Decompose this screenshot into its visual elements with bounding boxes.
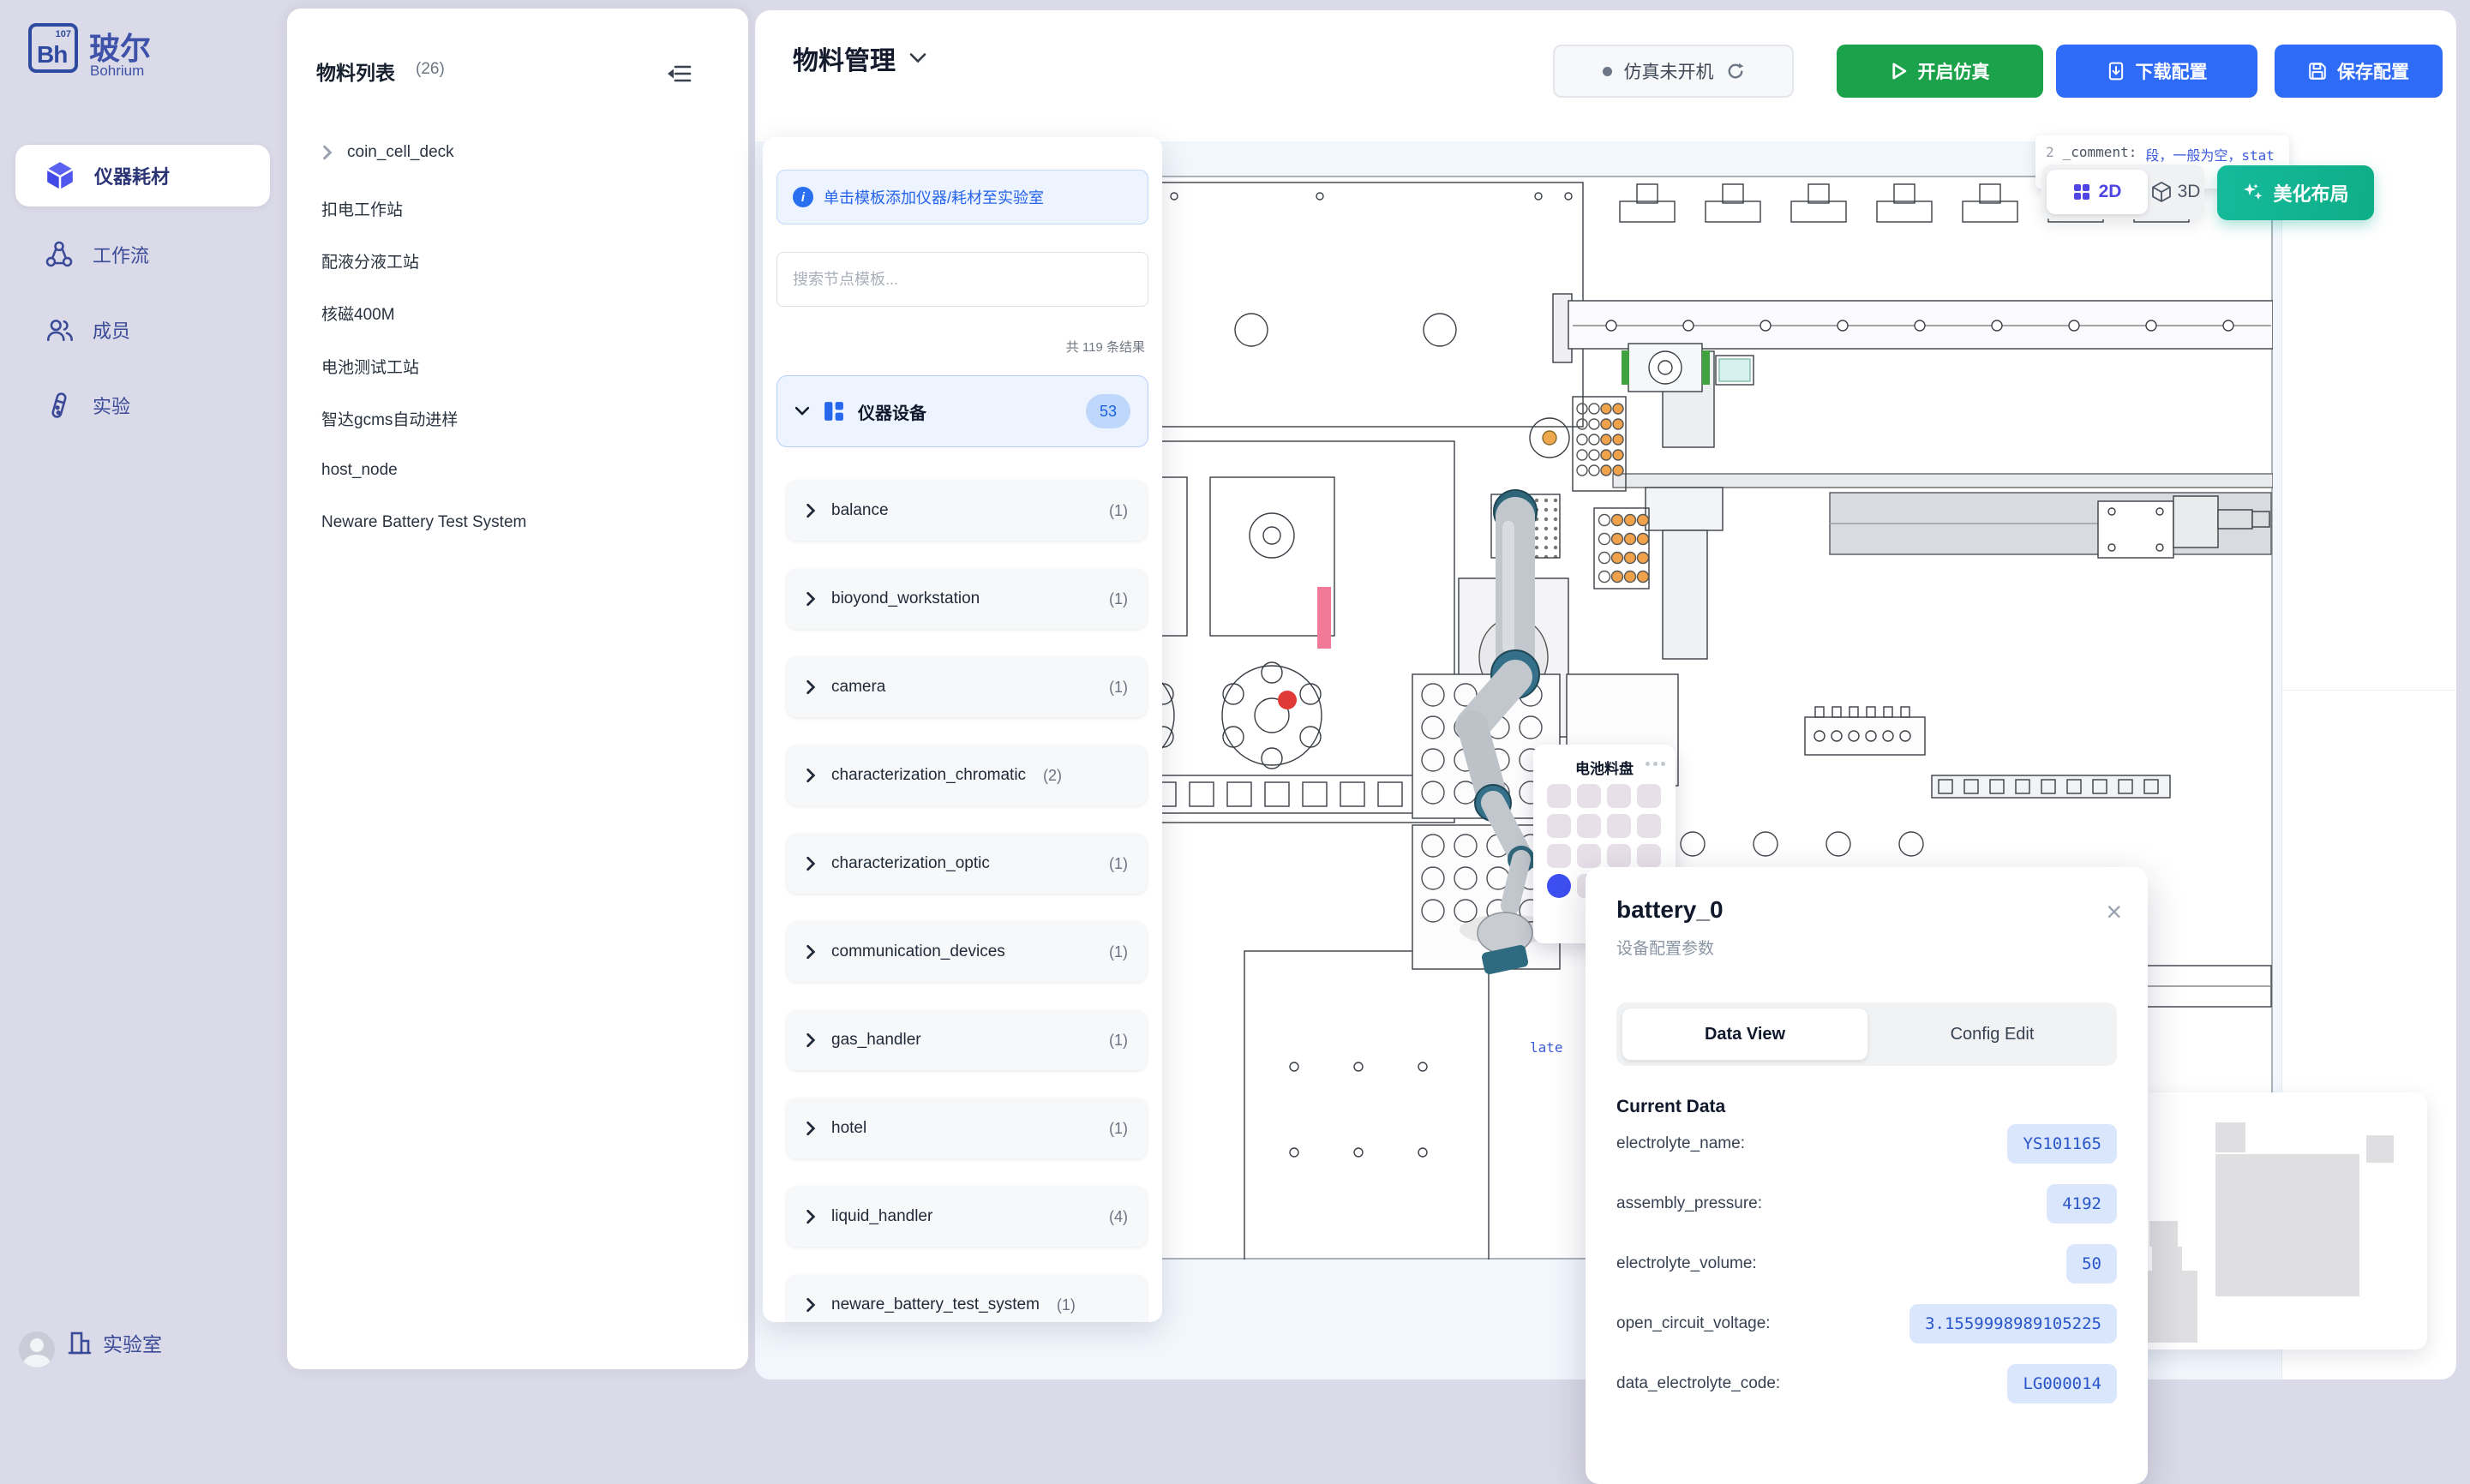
grid-2d-icon <box>2073 183 2090 200</box>
beautify-layout-button[interactable]: 美化布局 <box>2217 165 2374 220</box>
workflow-icon <box>45 240 74 269</box>
save-config-button[interactable]: 保存配置 <box>2275 45 2443 98</box>
save-icon <box>2308 62 2327 81</box>
close-icon[interactable]: × <box>2106 898 2122 925</box>
cube-3d-icon <box>2152 182 2171 202</box>
data-row: open_circuit_voltage: 3.1559998989105225 <box>1616 1304 2117 1343</box>
logo-symbol: Bh <box>37 41 67 69</box>
data-row: electrolyte_name: YS101165 <box>1616 1124 2117 1164</box>
experiment-icon <box>45 391 74 420</box>
template-item-count: (2) <box>1043 767 1062 785</box>
building-icon <box>67 1330 93 1355</box>
template-item-label: bioyond_workstation <box>831 589 980 608</box>
tray-slot[interactable] <box>1637 784 1661 808</box>
data-row-value: 50 <box>2066 1244 2117 1284</box>
sidebar-item-members[interactable]: 成员 <box>15 302 270 357</box>
devices-icon <box>824 401 844 422</box>
group-label: 仪器设备 <box>858 399 926 424</box>
code-key: _comment: <box>2063 144 2137 160</box>
template-item[interactable]: neware_battery_test_system (1) <box>787 1275 1147 1322</box>
tray-slot[interactable] <box>1547 784 1571 808</box>
template-item-label: characterization_optic <box>831 854 990 873</box>
template-item-count: (1) <box>1109 1032 1128 1050</box>
template-item-count: (1) <box>1109 943 1128 961</box>
page-title: 物料管理 <box>793 39 926 77</box>
material-item[interactable]: 电池测试工站 <box>321 349 419 383</box>
view-3d-button[interactable]: 3D <box>2148 182 2204 202</box>
data-row: electrolyte_volume: 50 <box>1616 1244 2117 1284</box>
template-item-label: camera <box>831 678 885 697</box>
chevron-right-icon <box>806 679 816 695</box>
sidebar-footer: 实验室 <box>0 1316 287 1393</box>
group-count-badge: 53 <box>1086 394 1130 428</box>
members-icon <box>45 315 74 344</box>
sidebar-item-label: 成员 <box>93 316 130 344</box>
plate-label-fragment: late <box>1530 1039 1563 1056</box>
data-row-label: open_circuit_voltage: <box>1616 1314 1771 1333</box>
material-item-label: Neware Battery Test System <box>321 513 526 532</box>
sidebar-item-label: 工作流 <box>93 241 149 268</box>
materials-panel: 物料列表 (26) coin_cell_deck 扣电工作站 配液分液工站 核磁… <box>287 9 748 1369</box>
bohrium-logo: 107 Bh <box>28 23 78 73</box>
minimap[interactable] <box>2124 1092 2427 1349</box>
chevron-right-icon <box>806 1121 816 1136</box>
template-item-count: (1) <box>1109 502 1128 520</box>
sidebar-item-instruments[interactable]: 仪器耗材 <box>15 145 270 206</box>
template-item-count: (1) <box>1109 590 1128 608</box>
sidebar-item-label: 仪器耗材 <box>94 162 170 189</box>
material-item-label: 配液分液工站 <box>321 249 419 272</box>
material-item[interactable]: 智达gcms自动进样 <box>321 401 458 435</box>
template-search-input[interactable] <box>776 252 1148 307</box>
tab-data-view[interactable]: Data View <box>1622 1008 1867 1060</box>
battery-config-popup: battery_0 设备配置参数 × Data View Config Edit… <box>1586 867 2148 1484</box>
chevron-right-icon <box>321 145 333 160</box>
material-item-label: 扣电工作站 <box>321 197 403 220</box>
sidebar-item-experiments[interactable]: 实验 <box>15 378 270 433</box>
download-icon <box>2107 62 2125 81</box>
tab-config-edit[interactable]: Config Edit <box>1867 1025 2117 1044</box>
material-item[interactable]: 核磁400M <box>321 296 395 330</box>
code-line-number: 2 <box>2046 144 2054 160</box>
popup-tabs: Data View Config Edit <box>1616 1002 2117 1066</box>
view-2d-button[interactable]: 2D <box>2047 170 2148 214</box>
popup-subtitle: 设备配置参数 <box>1616 936 1714 959</box>
template-item[interactable]: camera (1) <box>787 657 1147 717</box>
view-2d-label: 2D <box>2099 182 2122 202</box>
chevron-right-icon <box>806 503 816 518</box>
chevron-down-icon <box>794 406 810 416</box>
simulation-status[interactable]: 仿真未开机 <box>1553 45 1794 98</box>
material-item-expandable[interactable]: coin_cell_deck <box>321 135 454 170</box>
brand-subname: Bohrium <box>90 63 144 80</box>
download-config-button[interactable]: 下载配置 <box>2056 45 2257 98</box>
data-row-value: YS101165 <box>2007 1124 2117 1164</box>
start-label: 开启仿真 <box>1918 58 1990 84</box>
start-simulation-button[interactable]: 开启仿真 <box>1837 45 2043 98</box>
code-value: 段，一般为空，stat <box>2145 144 2275 165</box>
template-item[interactable]: characterization_optic (1) <box>787 834 1147 894</box>
chevron-right-icon <box>806 768 816 783</box>
save-label: 保存配置 <box>2337 58 2409 84</box>
template-item-label: characterization_chromatic <box>831 766 1026 785</box>
tray-slot[interactable] <box>1607 814 1631 838</box>
results-count: 共 119 条结果 <box>1066 338 1145 356</box>
lab-entry-label: 实验室 <box>103 1328 162 1357</box>
beautify-label: 美化布局 <box>2273 179 2348 206</box>
template-item-label: neware_battery_test_system <box>831 1296 1040 1314</box>
page-title-text: 物料管理 <box>793 39 896 77</box>
template-item-label: liquid_handler <box>831 1207 932 1226</box>
data-row-value: 3.1559998989105225 <box>1909 1304 2117 1343</box>
tray-slot[interactable] <box>1637 814 1661 838</box>
info-icon: i <box>793 187 813 207</box>
tray-slot[interactable] <box>1577 784 1601 808</box>
material-item[interactable]: host_node <box>321 453 398 488</box>
data-row: assembly_pressure: 4192 <box>1616 1184 2117 1224</box>
tray-slot-battery-0-selected[interactable] <box>1547 874 1571 898</box>
hint-text: 单击模板添加仪器/耗材至实验室 <box>824 186 1044 208</box>
chevron-right-icon <box>806 1297 816 1313</box>
avatar[interactable] <box>19 1331 55 1367</box>
template-item-label: hotel <box>831 1119 866 1138</box>
node-template-panel: i 单击模板添加仪器/耗材至实验室 共 119 条结果 仪器设备 53 bala… <box>763 137 1162 1322</box>
template-item[interactable]: communication_devices (1) <box>787 922 1147 982</box>
status-label: 仿真未开机 <box>1624 58 1714 84</box>
template-item[interactable]: gas_handler (1) <box>787 1010 1147 1070</box>
template-item-count: (4) <box>1109 1208 1128 1226</box>
chevron-right-icon <box>806 856 816 871</box>
view-mode-toggle: 2D 3D <box>2041 165 2204 219</box>
data-row-label: data_electrolyte_code: <box>1616 1374 1780 1393</box>
tray-slot[interactable] <box>1637 844 1661 868</box>
sparkles-icon <box>2242 182 2264 204</box>
template-item[interactable]: characterization_chromatic (2) <box>787 745 1147 805</box>
materials-count: (26) <box>416 60 445 79</box>
sidebar-item-workflow[interactable]: 工作流 <box>15 227 270 282</box>
template-item[interactable]: hotel (1) <box>787 1098 1147 1158</box>
template-item[interactable]: liquid_handler (4) <box>787 1187 1147 1247</box>
template-item-count: (1) <box>1109 1120 1128 1138</box>
tray-slot[interactable] <box>1607 784 1631 808</box>
hint-banner: i 单击模板添加仪器/耗材至实验室 <box>776 170 1148 224</box>
materials-title: 物料列表 <box>316 57 395 86</box>
tray-slot[interactable] <box>1577 844 1601 868</box>
chevron-right-icon <box>806 1209 816 1224</box>
material-item-label: 核磁400M <box>321 302 395 325</box>
sidebar: 107 Bh 玻尔 Bohrium 仪器耗材 工作流 成员 <box>0 0 287 1393</box>
tray-title: 电池料盘 <box>1533 757 1676 778</box>
template-item-count: (1) <box>1057 1296 1076 1314</box>
chevron-right-icon <box>806 1032 816 1048</box>
data-row-label: assembly_pressure: <box>1616 1194 1762 1213</box>
material-item[interactable]: Neware Battery Test System <box>321 506 526 540</box>
template-item-count: (1) <box>1109 679 1128 697</box>
cube-icon <box>45 160 75 191</box>
data-row-label: electrolyte_volume: <box>1616 1254 1757 1273</box>
data-rows: electrolyte_name: YS101165 assembly_pres… <box>1616 1124 2117 1424</box>
refresh-icon[interactable] <box>1726 62 1745 81</box>
tray-slot[interactable] <box>1607 844 1631 868</box>
logo-number: 107 <box>56 29 71 39</box>
material-item-label: coin_cell_deck <box>347 143 454 162</box>
group-instruments[interactable]: 仪器设备 53 <box>776 375 1148 447</box>
chevron-down-icon[interactable] <box>909 52 926 64</box>
play-icon <box>1891 63 1908 80</box>
current-data-heading: Current Data <box>1616 1097 1725 1117</box>
template-item-label: balance <box>831 501 889 520</box>
sidebar-item-label: 实验 <box>93 392 130 419</box>
material-item-label: 智达gcms自动进样 <box>321 407 458 430</box>
material-item-label: 电池测试工站 <box>321 355 419 378</box>
template-item-label: gas_handler <box>831 1031 921 1050</box>
chevron-right-icon <box>806 944 816 960</box>
data-row: data_electrolyte_code: LG000014 <box>1616 1364 2117 1403</box>
tray-menu-icon[interactable] <box>1646 762 1665 766</box>
material-item-label: host_node <box>321 461 398 480</box>
collapse-panel-icon[interactable] <box>668 63 692 84</box>
lab-entry[interactable]: 实验室 <box>67 1328 162 1357</box>
chevron-right-icon <box>806 591 816 607</box>
tray-slot[interactable] <box>1547 814 1571 838</box>
popup-title: battery_0 <box>1616 896 1724 924</box>
template-item[interactable]: balance (1) <box>787 481 1147 541</box>
template-item-count: (1) <box>1109 855 1128 873</box>
status-dot-icon <box>1603 67 1612 76</box>
view-3d-label: 3D <box>2178 182 2201 202</box>
data-row-value: 4192 <box>2047 1184 2117 1224</box>
data-row-label: electrolyte_name: <box>1616 1134 1745 1153</box>
download-label: 下载配置 <box>2136 58 2208 84</box>
material-item[interactable]: 扣电工作站 <box>321 191 403 225</box>
tray-slot[interactable] <box>1577 814 1601 838</box>
data-row-value: LG000014 <box>2007 1364 2117 1403</box>
template-item-label: communication_devices <box>831 942 1005 961</box>
template-item[interactable]: bioyond_workstation (1) <box>787 569 1147 629</box>
material-item[interactable]: 配液分液工站 <box>321 243 419 278</box>
tray-slot[interactable] <box>1547 844 1571 868</box>
